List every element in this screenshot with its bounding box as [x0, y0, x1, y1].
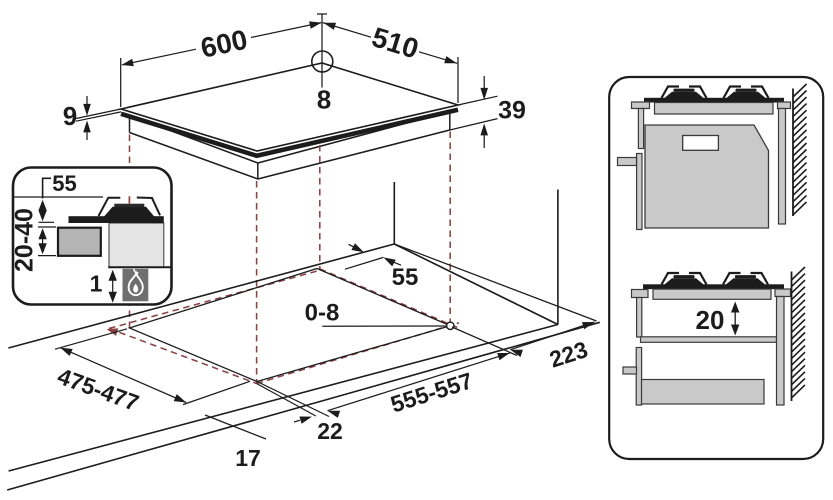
svg-text:0-8: 0-8	[305, 300, 340, 327]
svg-text:55: 55	[392, 264, 419, 291]
svg-text:55: 55	[52, 171, 76, 196]
svg-text:555-557: 555-557	[387, 367, 475, 417]
svg-text:9: 9	[63, 101, 77, 131]
svg-text:510: 510	[368, 21, 422, 64]
svg-text:22: 22	[317, 418, 343, 444]
svg-text:223: 223	[546, 336, 591, 373]
svg-text:600: 600	[198, 24, 250, 64]
svg-text:39: 39	[498, 97, 526, 125]
svg-text:8: 8	[317, 85, 331, 115]
svg-text:1: 1	[90, 271, 103, 297]
svg-text:20-40: 20-40	[11, 208, 39, 272]
svg-text:20: 20	[696, 305, 725, 335]
svg-text:17: 17	[235, 445, 261, 471]
svg-text:475-477: 475-477	[54, 363, 142, 416]
